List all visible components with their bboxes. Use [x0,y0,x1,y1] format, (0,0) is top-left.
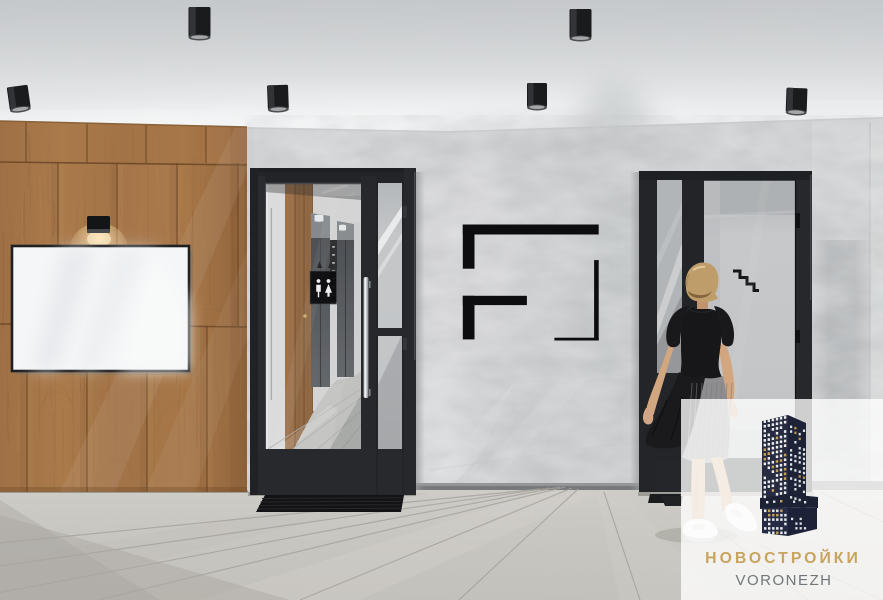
svg-text:VORONEZH: VORONEZH [735,572,832,589]
svg-text:НОВОСТРОЙКИ: НОВОСТРОЙКИ [705,548,861,567]
